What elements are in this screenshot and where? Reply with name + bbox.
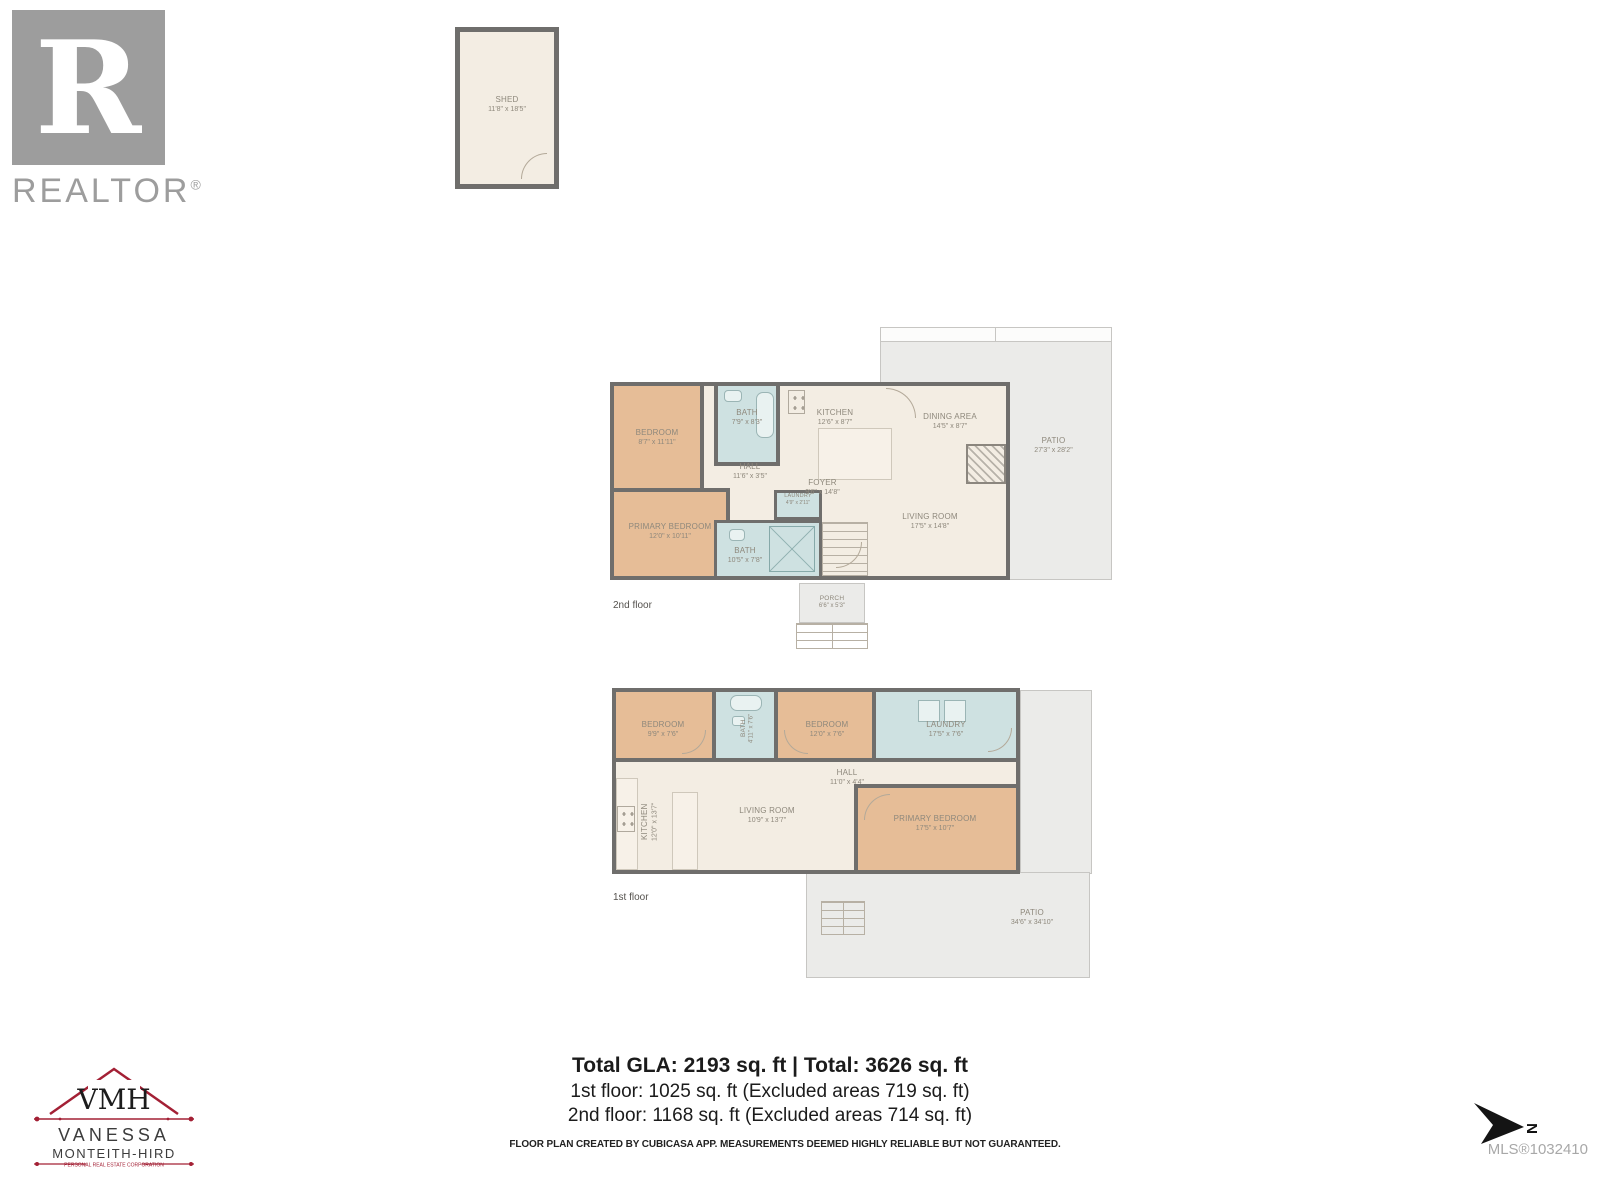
realtor-letter: R	[35, 14, 143, 164]
room-bath-1f	[716, 692, 778, 762]
washer-icon	[918, 700, 940, 722]
patio-stairs	[821, 901, 865, 935]
second-floor-area: 2nd floor: 1168 sq. ft (Excluded areas 7…	[270, 1105, 1270, 1127]
agent-last-name: MONTEITH-HIRD	[52, 1146, 176, 1161]
kitchen-island	[818, 428, 892, 480]
patio-label: PATIO 27'3" x 28'2"	[1001, 436, 1106, 455]
patio-label: PATIO 34'6" x 34'10"	[977, 908, 1087, 927]
dryer-icon	[944, 700, 966, 722]
stair-rail	[832, 624, 833, 648]
north-arrow-icon: N	[1468, 1098, 1548, 1148]
area-summary: Total GLA: 2193 sq. ft | Total: 3626 sq.…	[270, 1054, 1270, 1129]
fireplace-icon	[966, 444, 1006, 484]
porch: PORCH 6'6" x 5'3"	[799, 583, 865, 623]
room-name: PATIO	[977, 908, 1087, 918]
door-arc	[784, 730, 808, 754]
first-floor-area: 1st floor: 1025 sq. ft (Excluded areas 7…	[270, 1081, 1270, 1103]
room-bedroom1-1f	[616, 692, 716, 762]
toilet-icon	[724, 390, 742, 402]
railing-divider	[995, 328, 996, 341]
realtor-reg-mark: ®	[190, 177, 203, 193]
realtor-wordmark: REALTOR®	[12, 172, 204, 211]
sink-icon	[729, 529, 745, 541]
room-bath-top-2f	[714, 386, 780, 466]
floor-label-1st: 1st floor	[613, 892, 649, 903]
agent-tagline: PERSONAL REAL ESTATE CORPORATION	[64, 1163, 164, 1169]
room-primary-bedroom-2f	[614, 488, 730, 576]
room-bedroom2-1f	[778, 692, 876, 762]
room-primary-bedroom-1f	[854, 784, 1016, 870]
room-bath-bottom-2f	[714, 520, 822, 576]
north-arrow-glyph	[1468, 1098, 1530, 1148]
room-dims: 6'6" x 5'3"	[800, 603, 864, 611]
door-arc	[988, 728, 1012, 752]
room-name: PATIO	[1001, 436, 1106, 446]
stair-rail	[843, 902, 844, 934]
agent-logo: VMH VANESSA MONTEITH-HIRD PERSONAL REAL …	[28, 1056, 200, 1175]
door-arc	[864, 794, 890, 820]
agent-first-name: VANESSA	[58, 1125, 170, 1145]
room-dims: 27'3" x 28'2"	[1001, 446, 1106, 455]
patio-railing-outline	[880, 327, 1112, 342]
room-name: PORCH	[800, 595, 864, 603]
realtor-logo: R REALTOR®	[12, 10, 204, 211]
patio-1st-floor: PATIO 34'6" x 34'10"	[806, 872, 1090, 978]
floor-plan-2nd: BEDROOM 8'7" x 11'11" PRIMARY BEDROOM 12…	[610, 382, 1010, 580]
entry-stairs	[796, 623, 868, 649]
floor-plan-1st: BEDROOM 9'9" x 7'6" BATH 4'11" x 7'6" BE…	[612, 688, 1020, 874]
room-dims: 34'6" x 34'10"	[977, 918, 1087, 927]
realtor-word: REALTOR	[12, 172, 190, 210]
realtor-r-icon: R	[12, 10, 165, 165]
shower-icon	[769, 526, 815, 572]
agent-monogram: VMH	[76, 1083, 150, 1116]
total-gla: Total GLA: 2193 sq. ft | Total: 3626 sq.…	[270, 1054, 1270, 1078]
room-laundry-1f	[876, 692, 1016, 762]
kitchen-peninsula	[672, 792, 698, 870]
room-laundry-2f	[774, 490, 822, 520]
agent-logo-graphic: VMH VANESSA MONTEITH-HIRD PERSONAL REAL …	[28, 1056, 200, 1170]
door-arc	[682, 730, 706, 754]
patio-1st-right	[1020, 690, 1092, 874]
disclaimer-text: FLOOR PLAN CREATED BY CUBICASA APP. MEAS…	[270, 1139, 1300, 1150]
floor-plan-page: R REALTOR® SHED 11'8" x 18'5" PATIO 27'3…	[0, 0, 1600, 1200]
porch-label: PORCH 6'6" x 5'3"	[800, 595, 864, 611]
floor-label-2nd: 2nd floor	[613, 600, 652, 611]
north-label: N	[1523, 1123, 1540, 1134]
bathtub-icon	[730, 695, 762, 711]
stove-icon	[788, 390, 805, 414]
stove-icon	[617, 806, 635, 832]
room-bedroom-2f	[614, 386, 704, 492]
shed-plan: SHED 11'8" x 18'5"	[455, 27, 559, 189]
bathtub-icon	[756, 392, 774, 438]
toilet-icon	[732, 716, 745, 726]
